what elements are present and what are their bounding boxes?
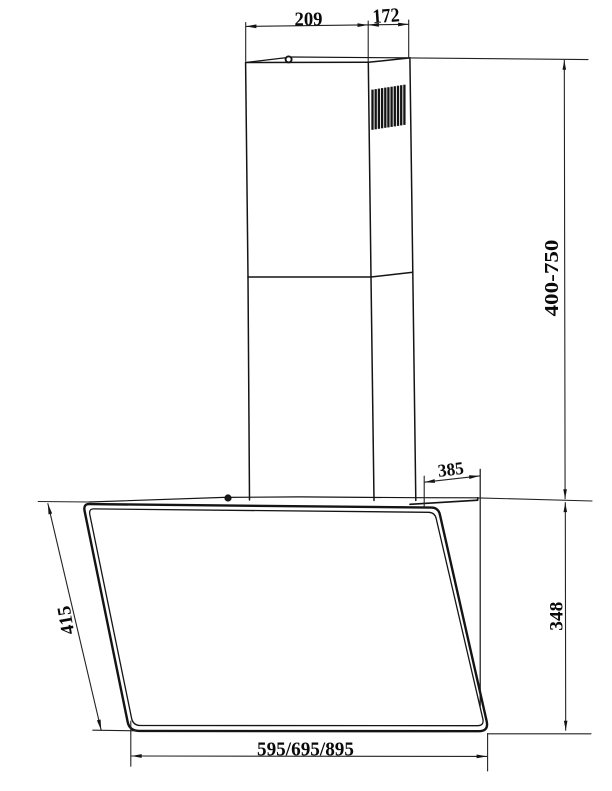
svg-text:400-750: 400-750 [541,240,563,317]
svg-text:172: 172 [372,4,400,28]
svg-text:348: 348 [547,602,568,631]
svg-text:595/695/895: 595/695/895 [257,738,354,760]
svg-text:385: 385 [437,458,465,481]
svg-text:209: 209 [295,9,323,31]
